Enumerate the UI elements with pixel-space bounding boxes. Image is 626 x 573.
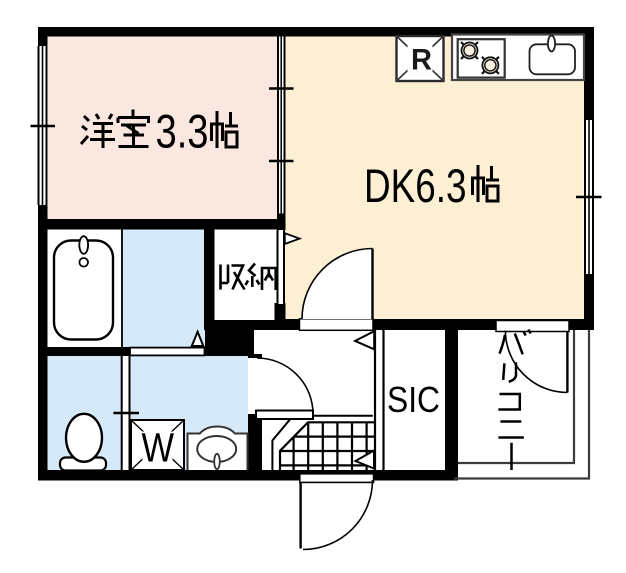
svg-text:DK6.3: DK6.3	[364, 159, 467, 212]
svg-text:3.3: 3.3	[156, 105, 209, 158]
svg-text:SIC: SIC	[387, 379, 440, 420]
svg-text:W: W	[142, 425, 175, 471]
svg-text:R: R	[411, 44, 432, 77]
